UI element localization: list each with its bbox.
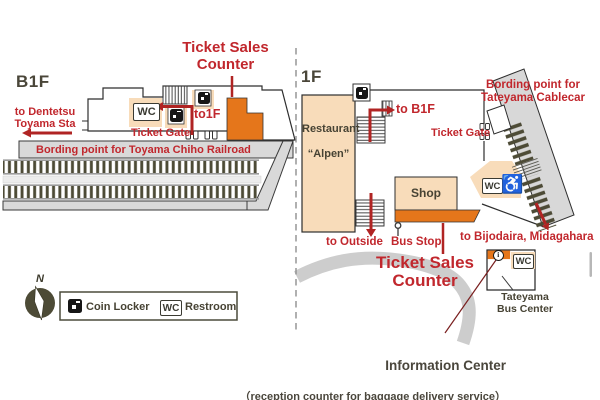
bus-stop-label: Bus Stop xyxy=(391,236,441,249)
to-outside-label: to Outside xyxy=(326,236,383,249)
railroad-track-2 xyxy=(3,185,259,199)
wheelchair-icon: ♿ xyxy=(501,175,523,195)
station-map: B1F 1F Ticket Sales Counter to Dentetsu … xyxy=(0,0,600,400)
f1-ticket-sales-counter-area xyxy=(395,210,480,222)
restaurant-label-line1: Restaurant xyxy=(302,123,359,135)
info-center-sublabel: （reception counter for baggage delivery … xyxy=(229,391,506,400)
cablecar-platform-label: Bording point for Tateyama Cablecar xyxy=(466,79,600,104)
compass xyxy=(25,287,55,321)
f1-floor-label: 1F xyxy=(301,68,322,87)
scrollbar-fragment xyxy=(590,252,593,277)
b1f-floor-label: B1F xyxy=(16,73,50,92)
wc-label-f1: WC xyxy=(482,178,503,194)
coin-locker-icon-b1f-top xyxy=(198,92,210,104)
bus-center-label: Tateyama Bus Center xyxy=(493,291,557,315)
f1-ticket-gate-label: Ticket Gate xyxy=(431,127,490,139)
to-b1f-label: to B1F xyxy=(396,103,435,117)
north-label: N xyxy=(36,273,44,285)
b1f-stairs xyxy=(163,86,187,104)
wc-label-b1f: WC xyxy=(133,103,160,121)
to-1f-label: to1F xyxy=(194,108,220,122)
restaurant-label-line2: “Alpen” xyxy=(308,148,350,160)
to-bijodaira-label: to Bijodaira, Midagahara xyxy=(460,231,594,244)
info-center-label: Information Center xyxy=(229,359,506,374)
coin-locker-icon-b1f-mid xyxy=(170,109,183,122)
wc-label-legend: WC xyxy=(160,300,182,316)
info-icon: i xyxy=(493,250,505,262)
b1f-ticket-sales-counter-label: Ticket Sales Counter xyxy=(168,40,283,73)
coin-locker-icon-legend xyxy=(68,299,82,313)
bus-stop-icon xyxy=(395,223,401,236)
station-map-svg xyxy=(0,0,600,400)
coin-locker-icon-f1 xyxy=(356,87,368,99)
to-dentetsu-label: to Dentetsu Toyama Sta xyxy=(10,106,80,130)
f1-ticket-sales-counter-label: Ticket Sales Counter xyxy=(375,254,475,290)
legend-restroom-label: Restroom xyxy=(185,301,236,313)
shop-label: Shop xyxy=(395,187,457,200)
toyama-chiho-platform-label: Bording point for Toyama Chiho Railroad xyxy=(36,144,251,156)
wc-label-bus-center: WC xyxy=(513,254,534,269)
railroad-track-1 xyxy=(3,160,259,174)
legend-coin-locker-label: Coin Locker xyxy=(86,301,150,313)
b1f-ticket-gate-label: Ticket Gate xyxy=(131,127,190,139)
